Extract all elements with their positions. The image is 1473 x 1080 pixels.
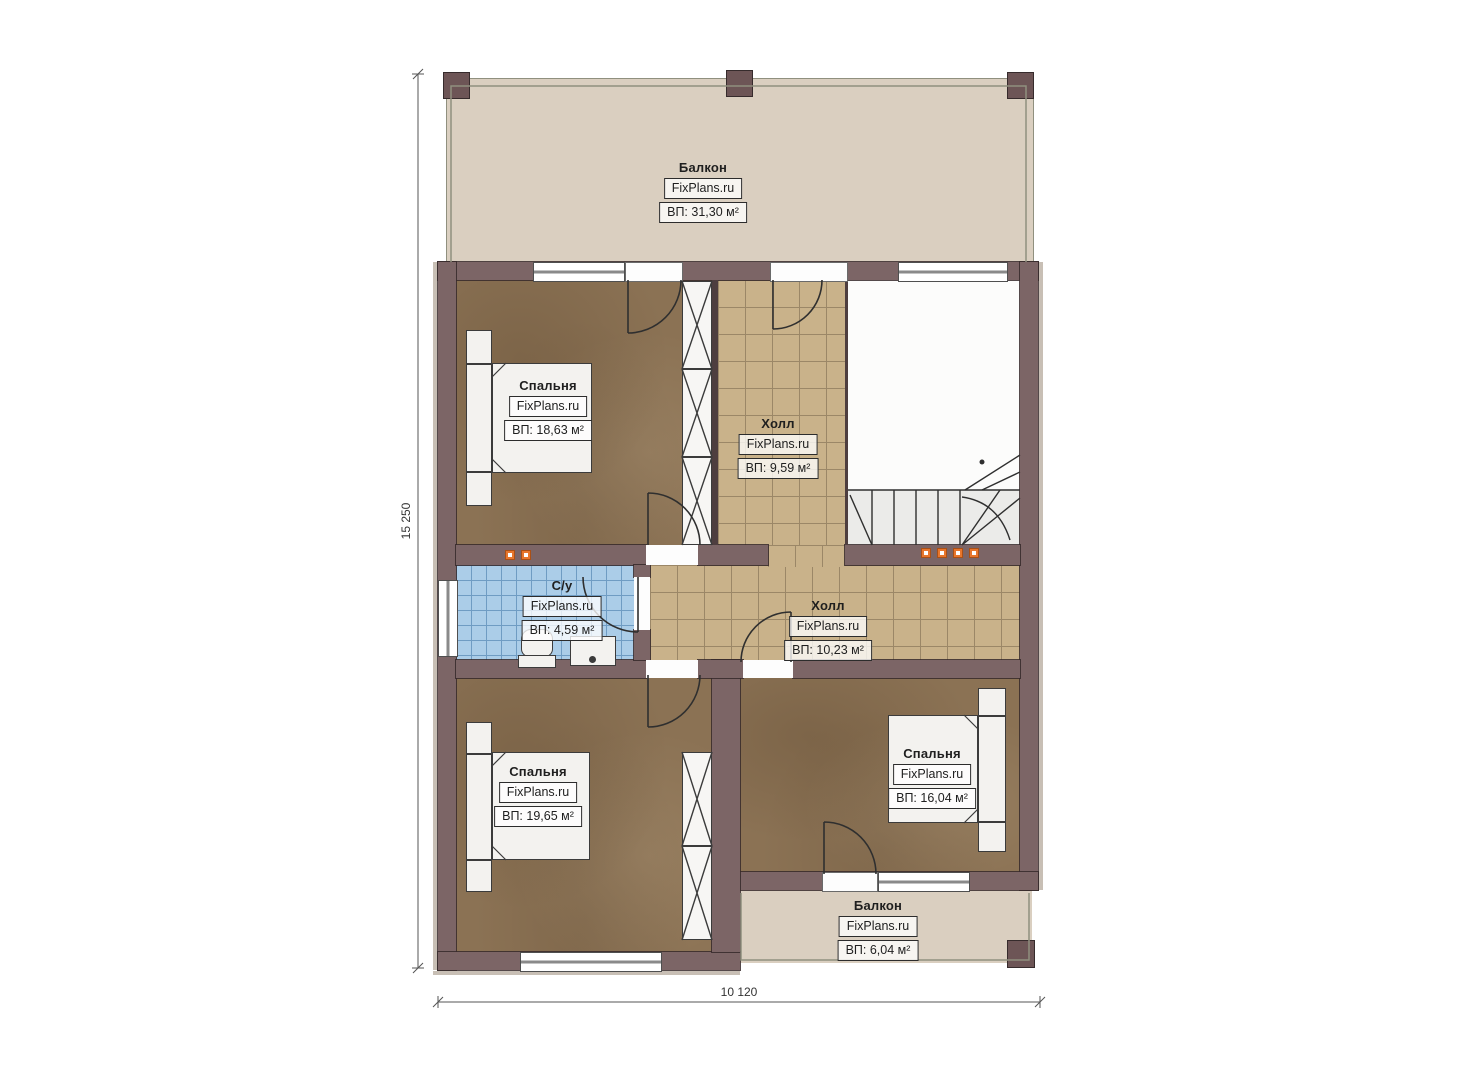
room-name: Спальня <box>509 764 567 779</box>
room-label-hall-lower: Холл FixPlans.ru ВП: 10,23 м² <box>784 598 872 661</box>
staircase <box>848 455 1020 545</box>
room-label-balcony-top: Балкон FixPlans.ru ВП: 31,30 м² <box>659 160 747 223</box>
brand-watermark: FixPlans.ru <box>789 616 868 637</box>
room-name: Холл <box>811 598 844 613</box>
room-label-bathroom: С/у FixPlans.ru ВП: 4,59 м² <box>522 578 603 641</box>
room-label-bedroom-1: Спальня FixPlans.ru ВП: 18,63 м² <box>504 378 592 441</box>
room-name: Спальня <box>903 746 961 761</box>
room-name: С/у <box>552 578 573 593</box>
room-area: ВП: 31,30 м² <box>659 202 747 223</box>
room-name: Балкон <box>854 898 902 913</box>
room-label-bedroom-3: Спальня FixPlans.ru ВП: 16,04 м² <box>888 746 976 809</box>
room-name: Холл <box>761 416 794 431</box>
room-label-hall-upper: Холл FixPlans.ru ВП: 9,59 м² <box>738 416 819 479</box>
room-label-balcony-bottom: Балкон FixPlans.ru ВП: 6,04 м² <box>838 898 919 961</box>
brand-watermark: FixPlans.ru <box>509 396 588 417</box>
room-area: ВП: 10,23 м² <box>784 640 872 661</box>
brand-watermark: FixPlans.ru <box>499 782 578 803</box>
room-area: ВП: 9,59 м² <box>738 458 819 479</box>
brand-watermark: FixPlans.ru <box>739 434 818 455</box>
room-name: Балкон <box>679 160 727 175</box>
brand-watermark: FixPlans.ru <box>523 596 602 617</box>
room-area: ВП: 19,65 м² <box>494 806 582 827</box>
dimension-horizontal-label: 10 120 <box>721 985 758 999</box>
room-area: ВП: 4,59 м² <box>522 620 603 641</box>
room-name: Спальня <box>519 378 577 393</box>
room-area: ВП: 16,04 м² <box>888 788 976 809</box>
brand-watermark: FixPlans.ru <box>893 764 972 785</box>
room-area: ВП: 6,04 м² <box>838 940 919 961</box>
wardrobe-x-lines <box>682 281 712 940</box>
brand-watermark: FixPlans.ru <box>664 178 743 199</box>
floor-plan-canvas: 15 250 10 120 Балкон FixPlans.ru ВП: 31,… <box>0 0 1473 1080</box>
room-label-bedroom-2: Спальня FixPlans.ru ВП: 19,65 м² <box>494 764 582 827</box>
room-area: ВП: 18,63 м² <box>504 420 592 441</box>
brand-watermark: FixPlans.ru <box>839 916 918 937</box>
door-swing <box>583 280 876 874</box>
dimension-vertical-label: 15 250 <box>399 502 413 539</box>
